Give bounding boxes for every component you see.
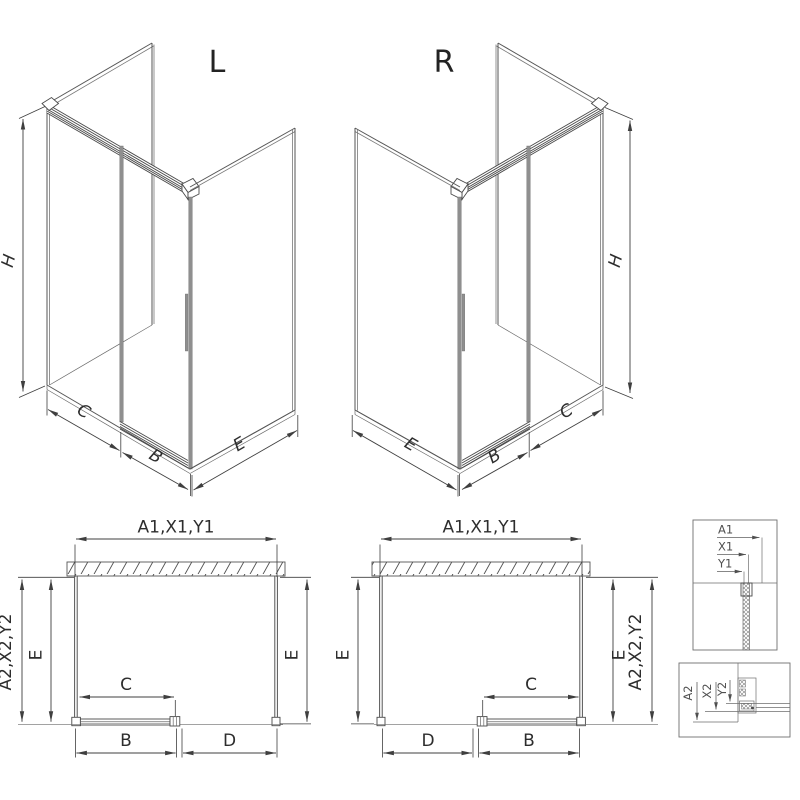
detail-bottom-profile: A2 X2 Y2 — [679, 663, 790, 737]
plan-middle-door-track — [477, 717, 576, 726]
dim-label-front-door-right: B — [484, 445, 504, 468]
left-side-panel-r — [355, 128, 461, 469]
corner-glass-edge-r — [458, 197, 462, 469]
wall-clamp-profile — [741, 583, 752, 596]
dim-label-front-fixed-right: C — [556, 400, 576, 423]
plan-view-middle: A1,X1,Y1 E E A2,X2,Y2 C D B — [334, 518, 659, 758]
left-side-panel — [47, 43, 154, 385]
view-label-right: R — [434, 45, 455, 80]
dim-label-front-fixed-left: C — [73, 400, 93, 423]
plan-left-door-track — [80, 717, 179, 726]
dim-label-height-right: H — [605, 252, 627, 269]
door-glass-edge-r — [527, 146, 530, 422]
wall-section — [67, 562, 285, 576]
dim-label-side-left: E — [230, 433, 250, 456]
door-end-profile — [170, 717, 180, 726]
corner-post-cap-r — [451, 179, 468, 200]
view-label-left: L — [209, 45, 226, 80]
plan-middle-dim-outer-right: A2,X2,Y2 — [626, 614, 646, 691]
plan-left-dim-bottom-right: D — [223, 731, 236, 751]
door-handle-r — [462, 294, 465, 351]
detail-bottom-dim-2: X2 — [700, 683, 714, 698]
iso-view-right: R — [352, 43, 633, 497]
plan-left-dim-depth-right: E — [283, 650, 303, 661]
technical-drawing-page: L — [0, 0, 800, 800]
plan-middle-dim-top: A1,X1,Y1 — [443, 518, 520, 538]
dim-label-height-left: H — [0, 252, 20, 269]
dim-label-front-door-left: B — [145, 445, 165, 468]
fastener-dot — [751, 707, 754, 710]
plan-left-dim-depth-left: E — [27, 650, 47, 661]
right-side-panel-r — [496, 43, 603, 385]
right-side-panel — [189, 128, 295, 469]
detail-bottom-dim-3: Y2 — [715, 682, 729, 697]
detail-frame — [693, 520, 777, 650]
door-glass-edge — [120, 146, 123, 422]
detail-top-profile: A1 X1 Y1 — [693, 520, 777, 650]
rail-end-cap-right — [592, 98, 609, 111]
detail-top-dim-3: Y1 — [717, 557, 732, 571]
door-end-profile — [477, 717, 487, 726]
plan-left-dim-bottom-left: B — [120, 731, 132, 751]
plan-left-panels — [72, 576, 280, 726]
detail-frame — [679, 663, 790, 737]
plan-view-left: A1,X1,Y1 E A2,X2,Y2 E C B D — [0, 518, 311, 758]
detail-top-dim-1: A1 — [718, 523, 733, 537]
corner-glass-edge — [189, 197, 193, 469]
plan-middle-dim-depth-left: E — [334, 650, 354, 661]
plan-left-dim-door: C — [120, 675, 132, 695]
iso-right-dimensions: H E B C — [352, 108, 633, 497]
detail-bottom-dim-1: A2 — [681, 685, 695, 700]
door-handle — [185, 294, 188, 351]
plan-left-dim-top: A1,X1,Y1 — [138, 518, 215, 538]
detail-top-dim-2: X1 — [718, 540, 733, 554]
iso-view-left: L — [0, 43, 298, 497]
rail-end-cap-left — [42, 98, 59, 111]
plan-left-dim-outer-left: A2,X2,Y2 — [0, 614, 16, 691]
tray-left — [47, 385, 295, 474]
plan-middle-dim-bottom-left: D — [421, 731, 434, 751]
plan-middle-panels — [377, 576, 585, 726]
plan-middle-dim-door: C — [525, 675, 537, 695]
corner-post-cap — [182, 179, 199, 200]
plan-middle-dim-bottom-right: B — [523, 731, 535, 751]
shower-enclosure-drawing: L — [0, 0, 800, 800]
wall-section — [372, 562, 590, 576]
tray-right — [355, 385, 603, 474]
